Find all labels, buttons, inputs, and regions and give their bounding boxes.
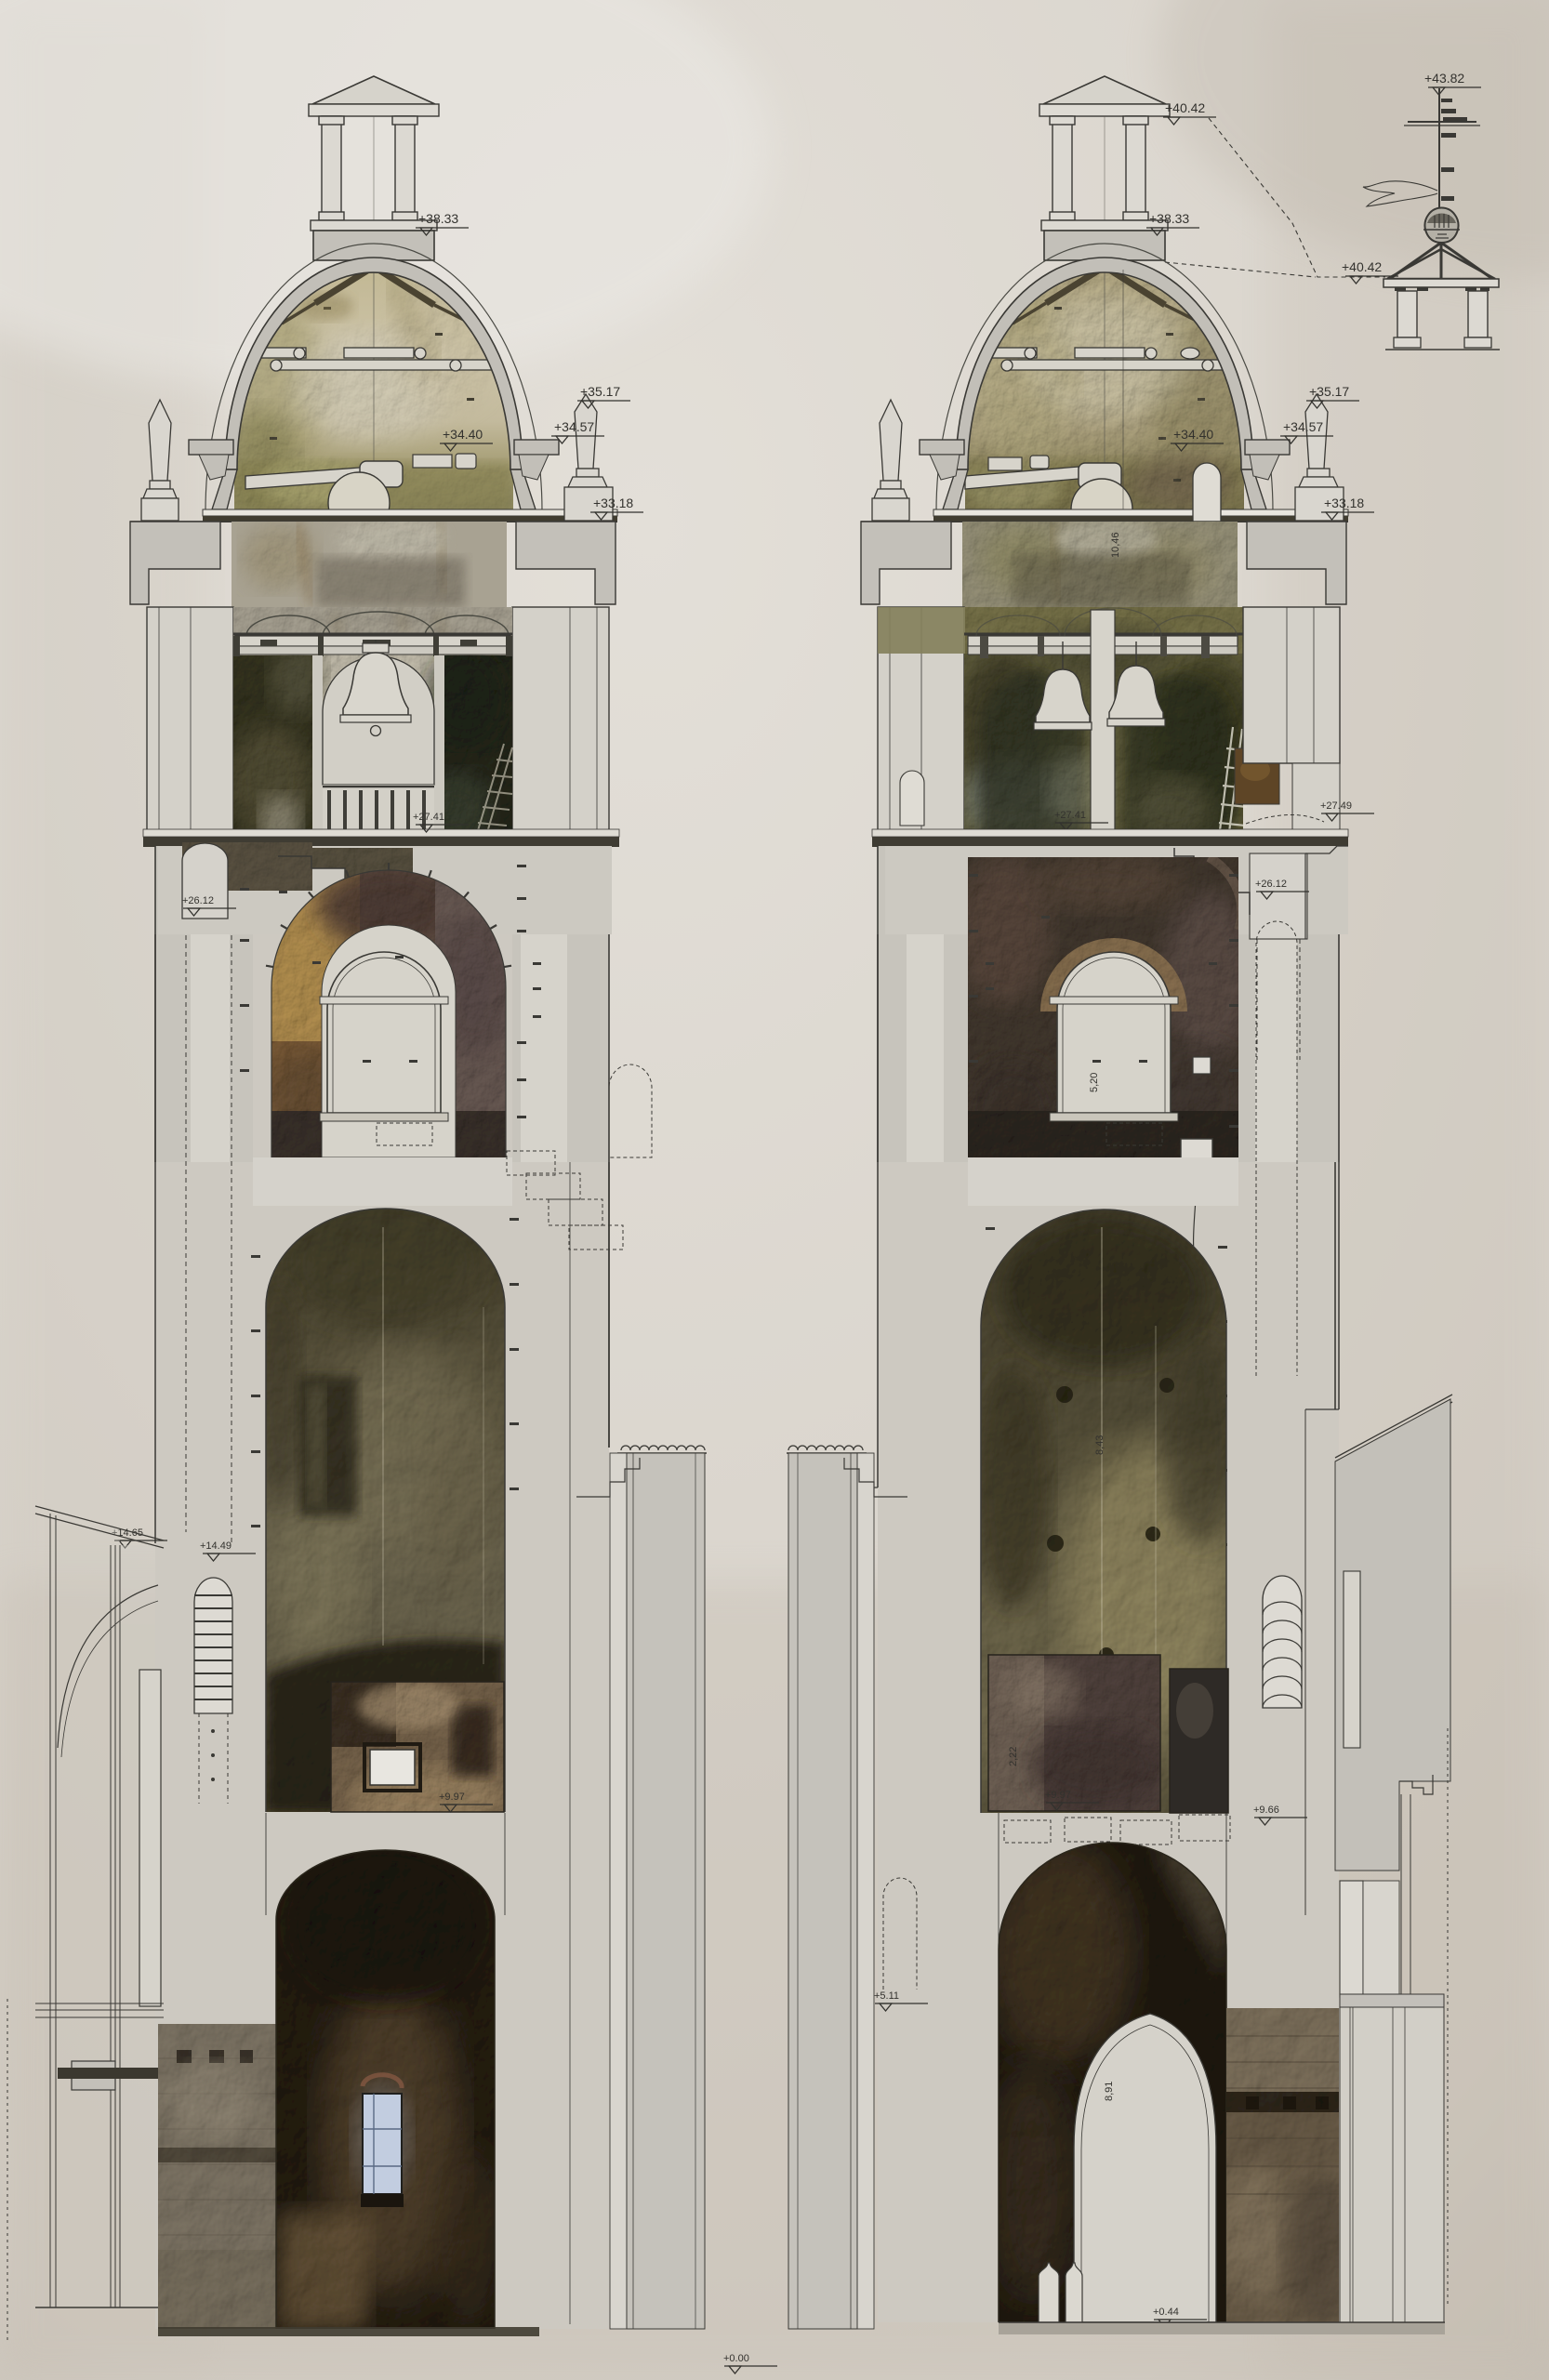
svg-text:8,91: 8,91 <box>1104 2082 1115 2101</box>
svg-text:+34.57: +34.57 <box>554 419 594 434</box>
svg-text:+40.42: +40.42 <box>1342 259 1382 274</box>
svg-text:+33.18: +33.18 <box>1324 496 1364 510</box>
svg-text:+38.33: +38.33 <box>418 211 458 226</box>
svg-text:+9.97: +9.97 <box>1045 1790 1071 1801</box>
svg-text:+38.33: +38.33 <box>1149 211 1189 226</box>
svg-text:+43.82: +43.82 <box>1424 71 1464 86</box>
svg-text:+27.41: +27.41 <box>1054 810 1086 821</box>
svg-text:+35.17: +35.17 <box>580 384 620 399</box>
svg-text:+14.49: +14.49 <box>200 1540 232 1552</box>
svg-text:+0.44: +0.44 <box>1153 2307 1179 2318</box>
svg-text:+34.40: +34.40 <box>1173 427 1213 442</box>
svg-text:8,43: 8,43 <box>1094 1435 1105 1455</box>
svg-text:+26.12: +26.12 <box>1255 879 1287 890</box>
svg-text:2,22: 2,22 <box>1008 1747 1019 1766</box>
svg-text:+9.66: +9.66 <box>1253 1805 1279 1816</box>
svg-text:5,20: 5,20 <box>1089 1073 1100 1092</box>
svg-text:+34.40: +34.40 <box>443 427 483 442</box>
svg-text:+9.97: +9.97 <box>439 1792 465 1803</box>
svg-text:+34.57: +34.57 <box>1283 419 1323 434</box>
svg-text:+27.41: +27.41 <box>413 812 444 823</box>
svg-text:+0.00: +0.00 <box>723 2353 749 2364</box>
svg-text:+5.11: +5.11 <box>874 1990 899 2002</box>
svg-text:10,46: 10,46 <box>1110 532 1121 558</box>
svg-text:+26.12: +26.12 <box>182 895 214 906</box>
svg-text:+35.17: +35.17 <box>1309 384 1349 399</box>
svg-text:+33.18: +33.18 <box>593 496 633 510</box>
svg-text:+27.49: +27.49 <box>1320 800 1352 812</box>
svg-text:+40.42: +40.42 <box>1165 100 1205 115</box>
